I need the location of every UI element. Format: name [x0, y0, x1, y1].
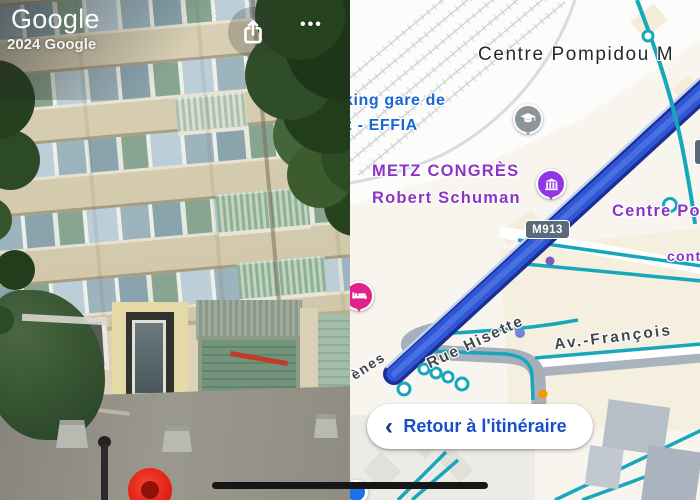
poi-label-parking-effia[interactable]: king gare de z - EFFIA [350, 88, 445, 138]
back-to-route-button[interactable]: ‹ Retour à l'itinéraire [367, 404, 593, 449]
concrete-bollard [314, 414, 338, 438]
red-graffiti-mark [230, 351, 288, 366]
google-logo-watermark: Google [11, 4, 100, 35]
poi-label-line: king gare de [350, 88, 445, 113]
balcony-railing [236, 256, 327, 304]
venue-pin[interactable] [536, 169, 566, 199]
chevron-left-icon: ‹ [385, 415, 393, 439]
entrance-door [126, 312, 174, 404]
more-options-button[interactable]: ••• [300, 16, 344, 46]
concrete-bollard [56, 420, 88, 448]
copyright-watermark: 2024 Google [7, 36, 96, 53]
corrugated-panel [196, 300, 302, 340]
poi-label-line: METZ CONGRÈS [372, 158, 521, 185]
poi-label-line: z - EFFIA [350, 113, 445, 138]
street-post [101, 444, 108, 500]
road-badge-m913: M913 [525, 220, 570, 239]
bed-icon [351, 288, 368, 305]
building-icon [543, 176, 560, 193]
graduation-cap-icon [519, 110, 537, 128]
road-badge-partial [694, 139, 700, 165]
street-view-photo[interactable]: Google 2024 Google ••• [0, 0, 350, 500]
phone-screen: Google 2024 Google ••• [0, 0, 700, 500]
poi-label-line: Robert Schuman [372, 185, 521, 212]
map-canvas[interactable]: Centre Pompidou M king gare de z - EFFIA… [350, 0, 700, 500]
poi-label-metz-congres[interactable]: METZ CONGRÈS Robert Schuman [372, 158, 521, 212]
education-pin[interactable] [513, 104, 543, 134]
poi-label-centre-pompidou[interactable]: Centre Pompidou M [478, 44, 674, 66]
poi-label-centre-po[interactable]: Centre Po [612, 198, 700, 225]
balcony-railing [215, 187, 310, 237]
poi-label-conte[interactable]: conte [667, 243, 700, 270]
share-icon [238, 17, 268, 47]
position-marker-core [141, 481, 159, 499]
home-indicator[interactable] [212, 482, 488, 489]
concrete-bollard [162, 426, 192, 452]
window-row [0, 112, 350, 182]
back-button-label: Retour à l'itinéraire [393, 416, 593, 437]
door-glass [132, 320, 166, 396]
share-button[interactable] [228, 7, 278, 57]
window-row [0, 182, 350, 252]
